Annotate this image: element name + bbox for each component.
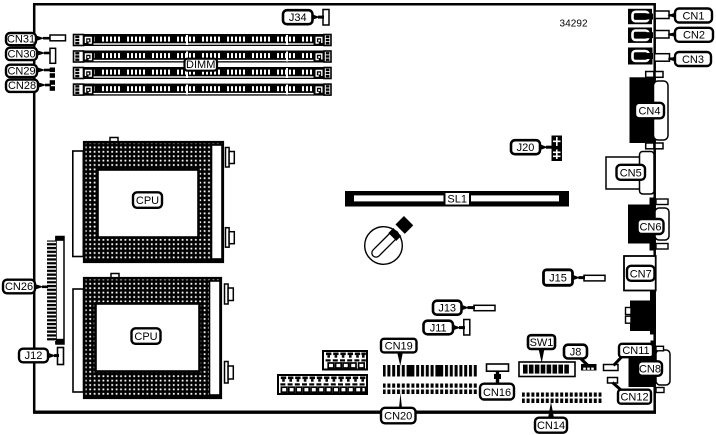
svg-text:DIMM: DIMM — [186, 59, 215, 71]
svg-text:34292: 34292 — [560, 19, 588, 30]
svg-text:J8: J8 — [570, 346, 582, 358]
svg-text:SW1: SW1 — [530, 337, 554, 349]
svg-text:J11: J11 — [430, 322, 447, 334]
svg-text:CN2: CN2 — [683, 30, 705, 42]
svg-text:CN11: CN11 — [622, 345, 649, 357]
svg-text:CN7: CN7 — [630, 268, 652, 280]
svg-text:CN4: CN4 — [638, 106, 660, 118]
svg-text:J15: J15 — [549, 273, 567, 285]
svg-text:CN1: CN1 — [682, 10, 704, 22]
svg-text:J12: J12 — [25, 350, 43, 362]
svg-text:J20: J20 — [517, 142, 535, 154]
svg-text:CN20: CN20 — [384, 411, 412, 423]
svg-text:CN14: CN14 — [537, 420, 565, 432]
svg-text:CN8: CN8 — [639, 364, 661, 376]
svg-text:CN5: CN5 — [620, 167, 642, 179]
svg-text:SL1: SL1 — [447, 194, 467, 206]
svg-text:CN16: CN16 — [483, 387, 511, 399]
svg-text:CPU: CPU — [136, 195, 159, 207]
svg-text:CN26: CN26 — [5, 281, 33, 293]
svg-text:CN28: CN28 — [8, 80, 36, 92]
svg-text:CN6: CN6 — [639, 222, 661, 234]
svg-text:CN3: CN3 — [682, 54, 704, 66]
svg-text:J34: J34 — [289, 12, 307, 24]
svg-text:CPU: CPU — [134, 331, 157, 343]
svg-text:CN29: CN29 — [7, 65, 35, 77]
svg-text:J13: J13 — [438, 303, 456, 315]
svg-text:CN31: CN31 — [7, 34, 35, 46]
svg-text:CN19: CN19 — [385, 340, 413, 352]
svg-text:CN12: CN12 — [620, 392, 648, 404]
svg-text:CN30: CN30 — [7, 48, 35, 60]
